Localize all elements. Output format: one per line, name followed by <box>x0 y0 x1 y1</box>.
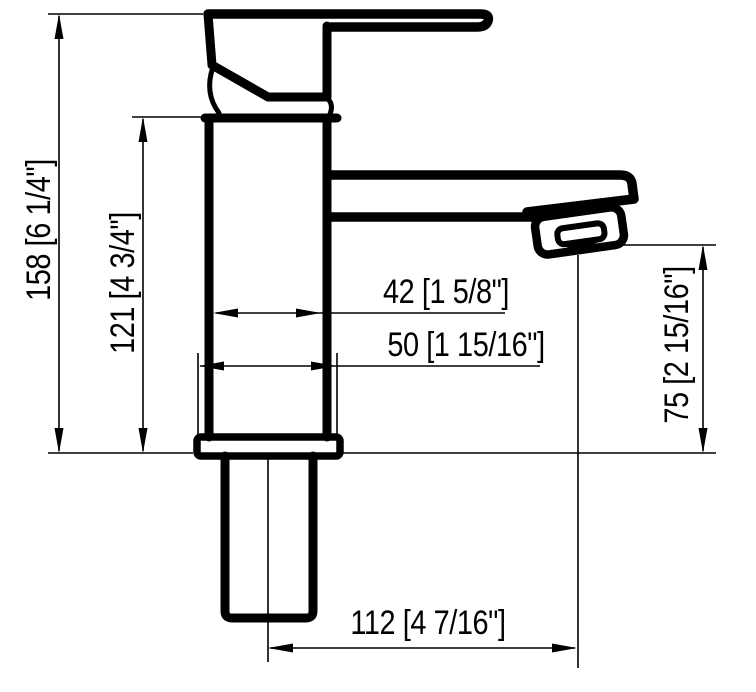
neck-left-arc <box>210 67 219 113</box>
arrow-down-clearance <box>699 428 708 453</box>
arrow-down-body <box>139 428 148 453</box>
aerator <box>534 206 625 256</box>
handle-lever-outline <box>208 14 488 27</box>
handle-bottom-diagonal <box>212 65 326 97</box>
arrow-down-total <box>55 428 64 453</box>
dimension-lines <box>48 14 716 668</box>
arrow-left-body-width <box>213 309 238 318</box>
arrowheads <box>55 14 708 653</box>
neck-right-arc <box>327 98 331 114</box>
dimension-labels: 158 [6 1/4"] 121 [4 3/4"] 42 [1 5/8"] 50… <box>19 159 696 641</box>
shank-outline <box>225 456 313 618</box>
arrow-right-reach <box>552 644 577 653</box>
handle-left-edge <box>208 14 212 65</box>
dim-label-spout-clearance: 75 [2 15/16"] <box>657 266 696 423</box>
faucet-dimension-drawing: 158 [6 1/4"] 121 [4 3/4"] 42 [1 5/8"] 50… <box>0 0 756 692</box>
base-flange <box>197 437 340 456</box>
drawing-svg: 158 [6 1/4"] 121 [4 3/4"] 42 [1 5/8"] 50… <box>0 0 756 692</box>
arrow-right-body-width <box>296 309 321 318</box>
dim-label-base-width: 50 [1 15/16"] <box>387 325 544 364</box>
faucet-outline <box>197 14 634 618</box>
arrow-up-clearance <box>699 245 708 270</box>
dim-label-spout-reach: 112 [4 7/16"] <box>350 603 505 642</box>
dim-label-total-height: 158 [6 1/4"] <box>19 159 58 301</box>
dim-label-body-height: 121 [4 3/4"] <box>103 212 142 354</box>
dim-label-body-width: 42 [1 5/8"] <box>383 272 509 311</box>
arrow-left-reach <box>268 644 293 653</box>
arrow-up-total <box>55 14 64 39</box>
arrow-up-body <box>139 117 148 142</box>
